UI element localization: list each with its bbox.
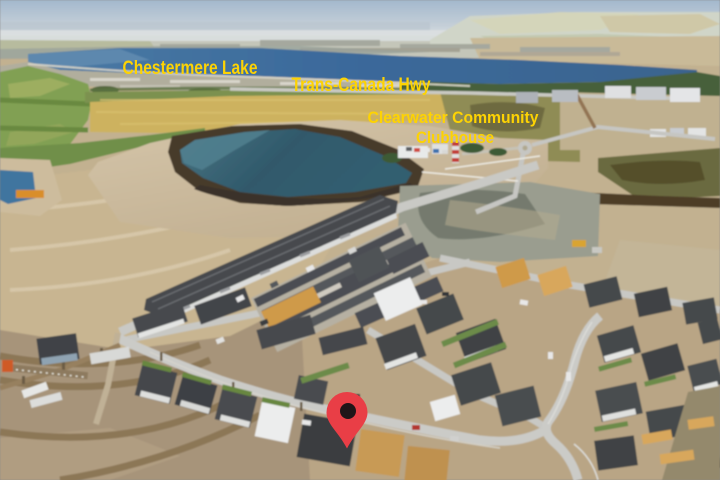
svg-text:Clearwater Community: Clearwater Community	[368, 108, 539, 127]
svg-text:Clubhouse: Clubhouse	[416, 128, 494, 147]
svg-text:Chestermere Lake: Chestermere Lake	[123, 58, 258, 79]
svg-text:Trans-Canada Hwy: Trans-Canada Hwy	[292, 75, 431, 96]
